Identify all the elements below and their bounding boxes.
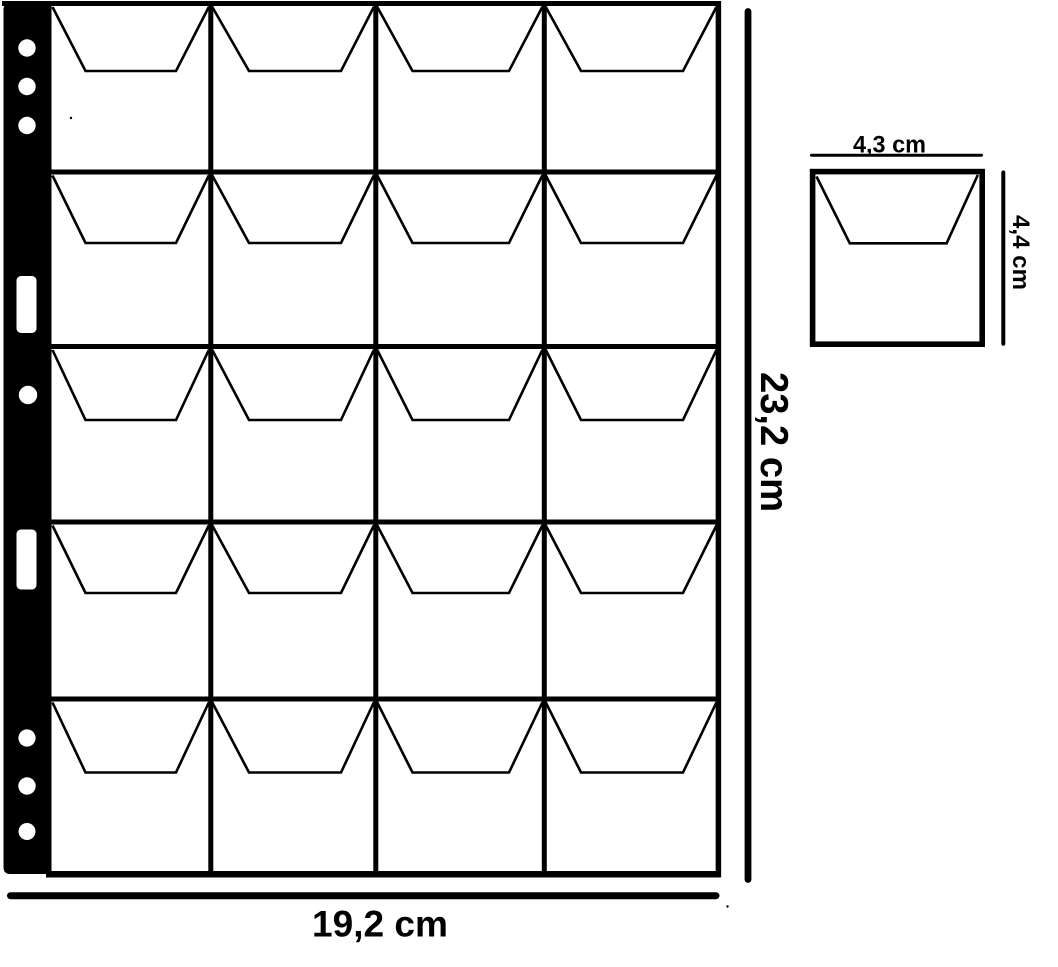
svg-text:23,2 cm: 23,2 cm — [752, 372, 795, 512]
svg-text:4,3 cm: 4,3 cm — [853, 132, 926, 159]
svg-text:19,2 cm: 19,2 cm — [312, 904, 448, 945]
svg-text:4,4 cm: 4,4 cm — [1007, 215, 1034, 290]
